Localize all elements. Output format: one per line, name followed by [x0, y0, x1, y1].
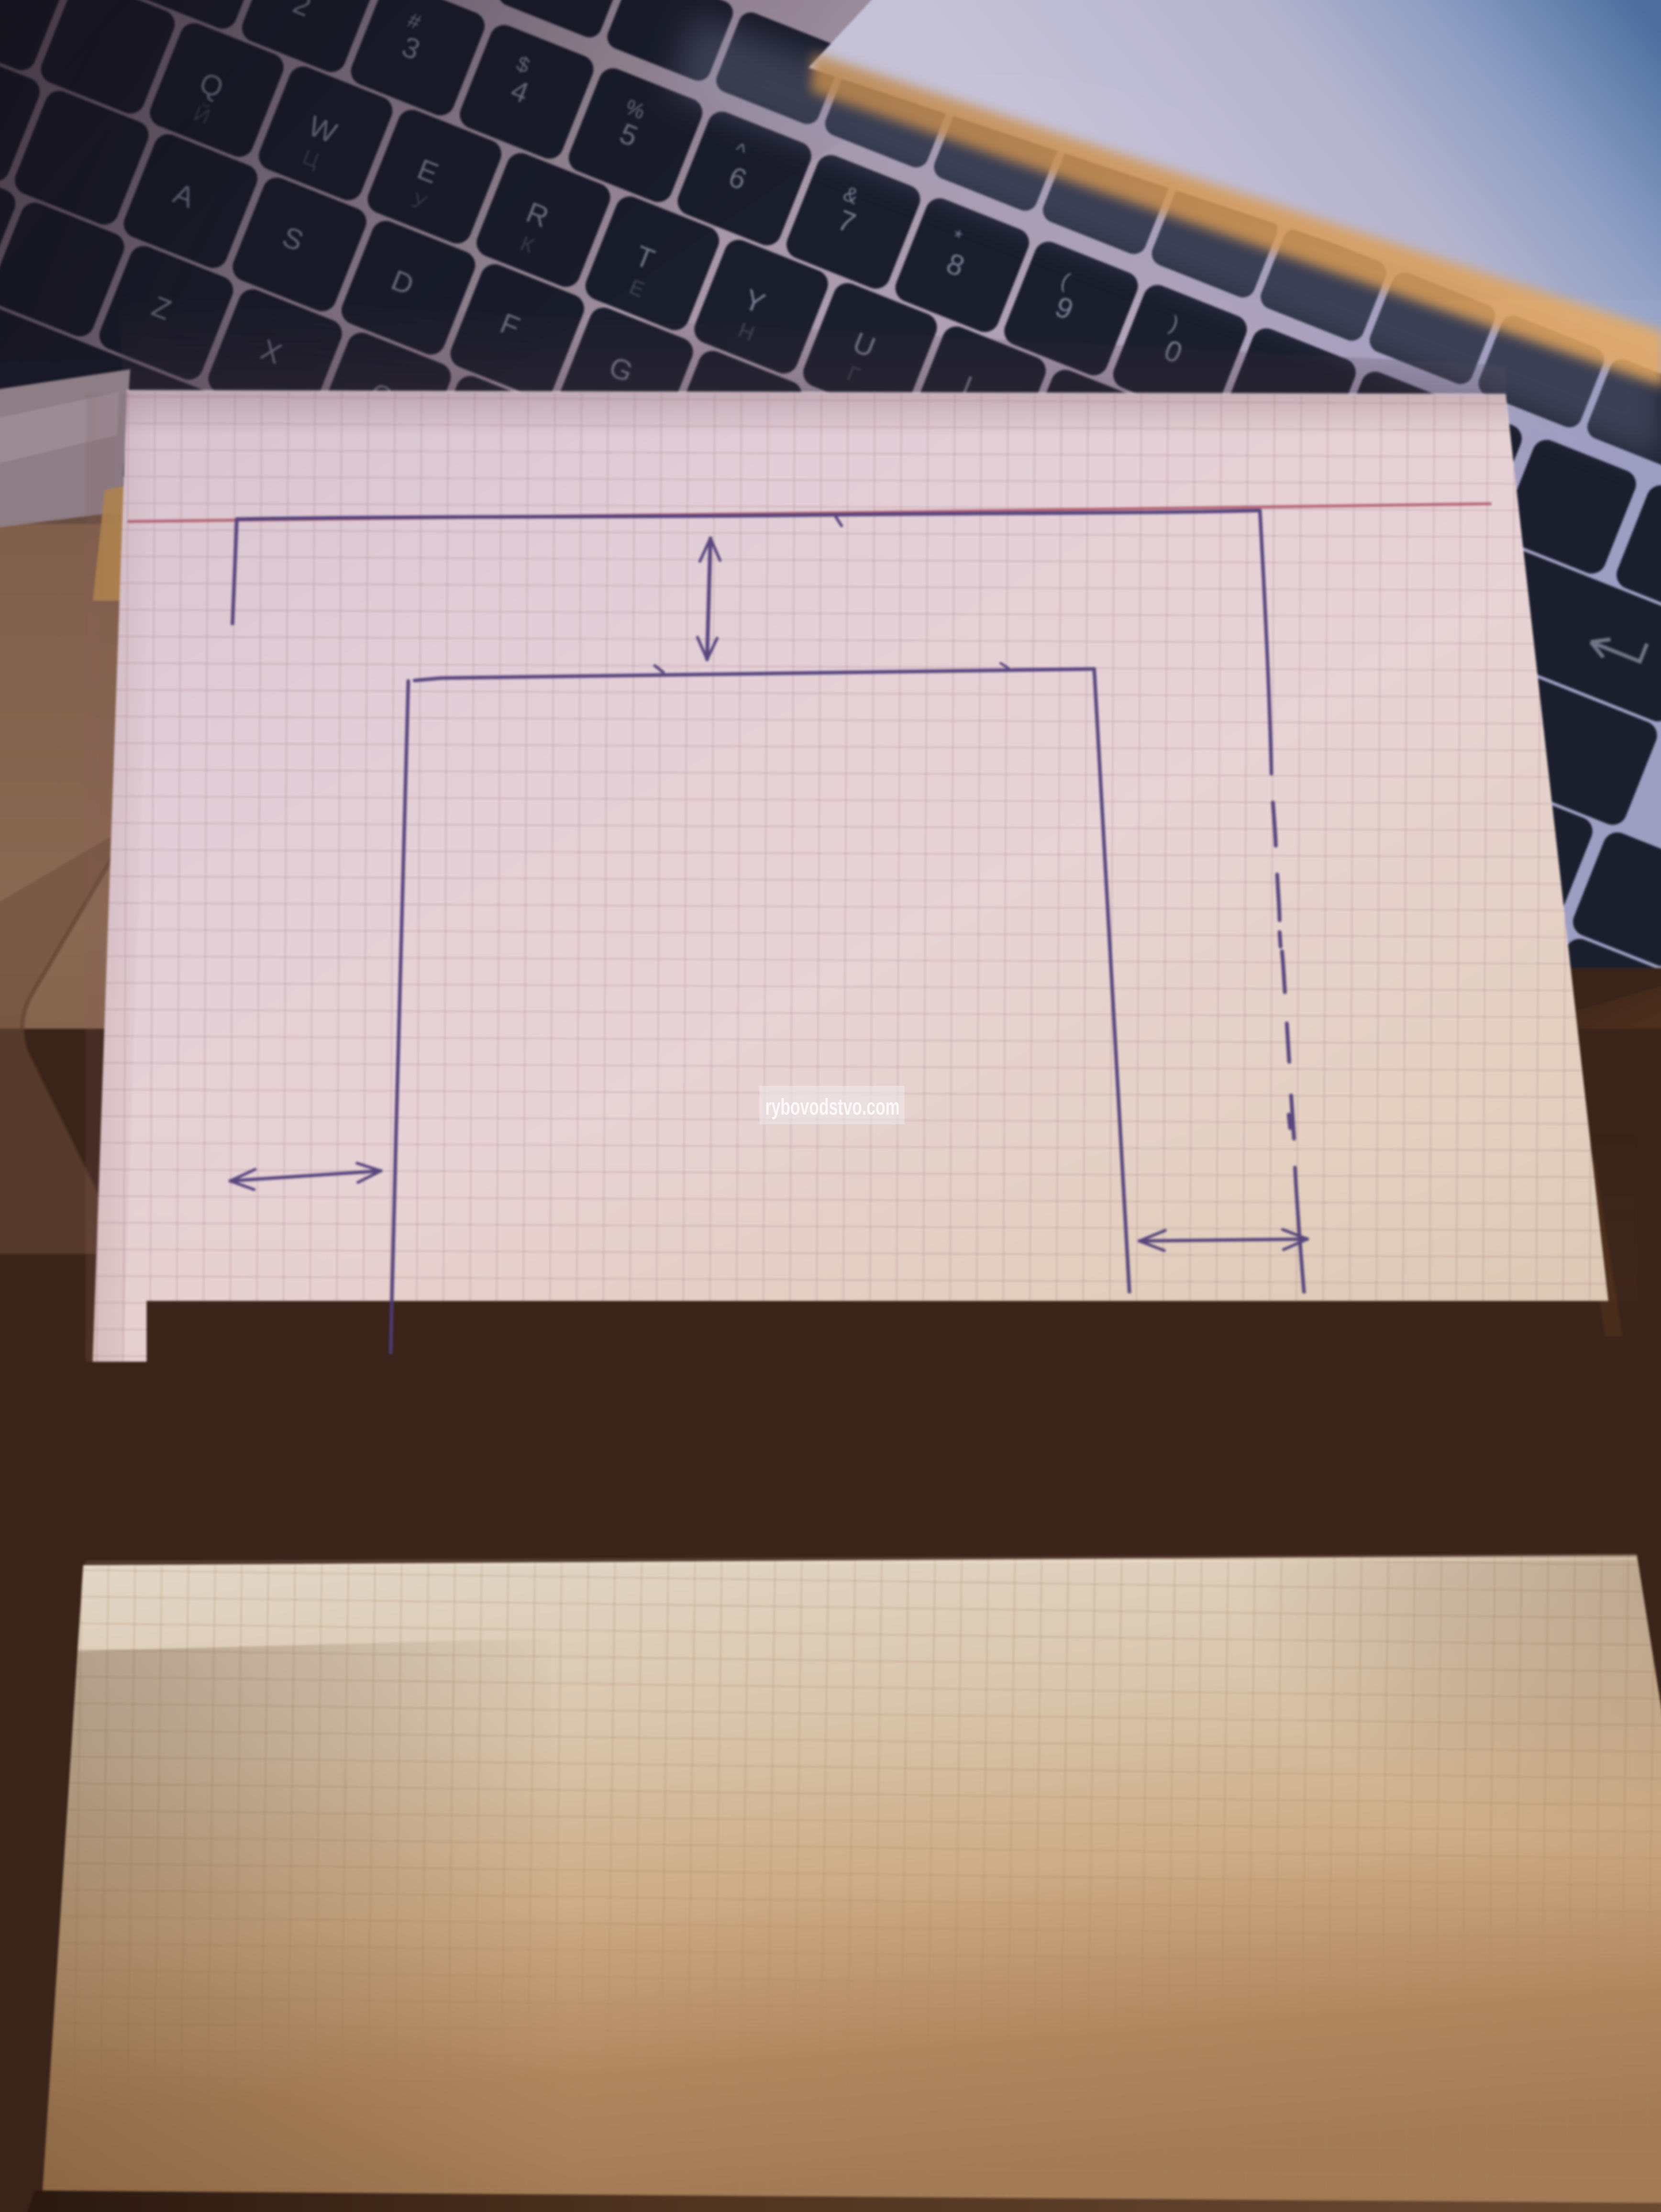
svg-text:rybovodstvo.com: rybovodstvo.com — [765, 1094, 899, 1120]
svg-text:AI QUAD CAMERA: AI QUAD CAMERA — [180, 2097, 496, 2153]
